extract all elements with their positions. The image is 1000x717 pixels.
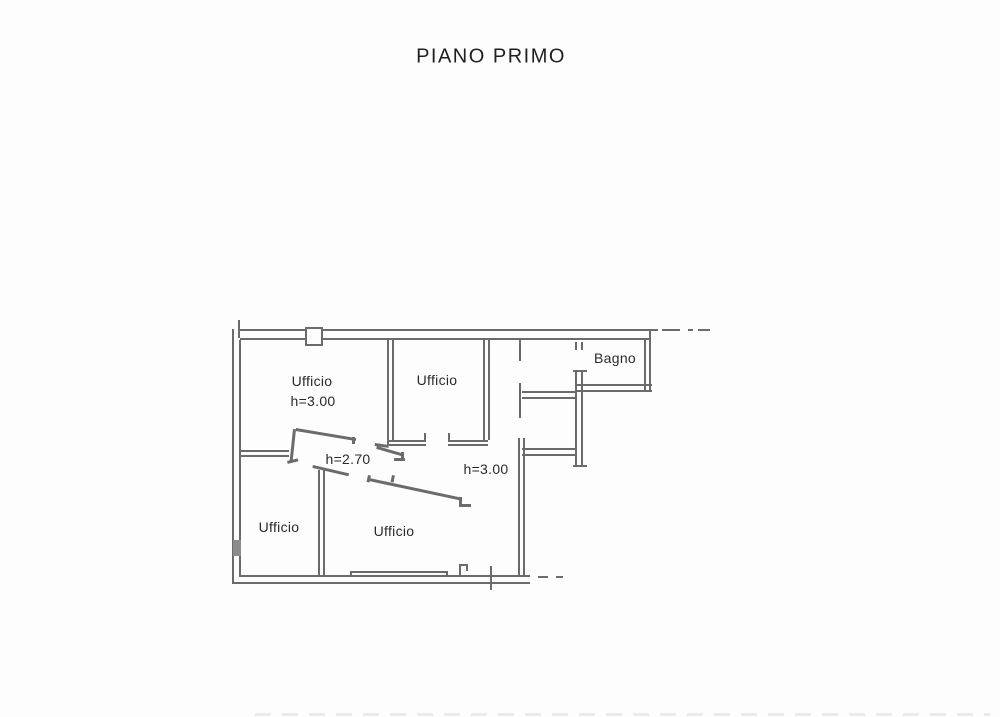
column-pillar (305, 327, 323, 346)
top-middle-office-bottom-seg1-top (387, 440, 426, 442)
left-wall-filled-segment (233, 540, 241, 556)
bottom-boundary-dash-1 (538, 576, 548, 578)
bagno-door-jamb-left (575, 342, 577, 350)
height-annotation-300: h=3.00 (463, 461, 508, 477)
slanted-wall (368, 478, 462, 501)
bagno-left-wall-foot (573, 465, 587, 467)
slanted-wall-end-foot (459, 504, 471, 507)
top-middle-office-bottom-seg2-top (448, 440, 488, 442)
partition-wall-2-top (522, 448, 577, 450)
section-mark-tick (490, 566, 492, 590)
scan-artifact-strip (255, 713, 990, 716)
window-line (350, 571, 448, 573)
bottom-offices-divider-line-b (323, 470, 325, 575)
room-label-ufficio-bottom-left: Ufficio (259, 519, 300, 535)
top-middle-office-door-jamb-right (448, 433, 450, 442)
floor-plan-page: PIANO PRIMO (0, 0, 1000, 717)
top-office-divider-line-b (392, 340, 394, 440)
page-title: PIANO PRIMO (416, 46, 566, 69)
bagno-bottom-wall-bottom-line (577, 390, 652, 392)
angled-door-jamb (290, 429, 296, 462)
height-note-ufficio-top-left: h=3.00 (290, 393, 335, 409)
boundary-dash-1 (662, 329, 680, 331)
top-wall-outer-line (240, 329, 658, 331)
corridor-wall-outer-line (518, 438, 520, 577)
angled-partition-upper (296, 428, 357, 441)
bottom-door-jamb-tick (466, 566, 468, 571)
bottom-offices-divider-line-a (318, 470, 320, 577)
corridor-wall-inner-line (523, 438, 525, 575)
bottom-wall-inner-line (239, 575, 530, 577)
top-middle-office-right-wall-b (488, 340, 490, 440)
left-offices-divider-bottom-line (241, 455, 289, 457)
bagno-right-wall-inner (644, 340, 646, 390)
left-offices-divider-top-line (241, 450, 289, 452)
door-leaf-foot (394, 458, 405, 461)
top-middle-office-door-jamb-left (424, 433, 426, 442)
left-wall-top-tick (238, 320, 240, 338)
corridor-wall-upper-jamb (519, 340, 521, 361)
top-wall-inner-line (240, 338, 650, 340)
bagno-door-jamb-right (581, 342, 583, 350)
bagno-bottom-wall-top-line (577, 384, 652, 386)
partition-wall-1-top (522, 391, 577, 393)
window-end-left (350, 571, 352, 577)
top-middle-office-right-wall-a (483, 340, 485, 440)
top-office-divider-line-a (387, 340, 389, 445)
window-end-right (446, 571, 448, 577)
bagno-right-wall-outer (649, 331, 651, 392)
boundary-dash-2 (688, 329, 693, 331)
angled-door-jamb-foot (287, 458, 298, 464)
partition-wall-1-bottom (522, 397, 577, 399)
top-middle-office-bottom-seg2-bottom (448, 444, 488, 446)
corridor-wall-middle-jamb (519, 383, 521, 418)
bottom-boundary-dash-2 (556, 576, 563, 578)
room-label-ufficio-bottom-middle: Ufficio (374, 523, 415, 539)
top-middle-office-bottom-seg1-bottom (389, 444, 426, 446)
room-label-ufficio-top-left: Ufficio (292, 373, 333, 389)
partition-wall-2-bottom (522, 454, 577, 456)
bottom-wall-outer-line (232, 582, 530, 584)
slanted-wall-jamb-bump (391, 475, 395, 482)
angled-partition-upper-end-tick (352, 437, 355, 444)
room-label-bagno: Bagno (594, 350, 636, 366)
boundary-dash-3 (698, 329, 710, 331)
room-label-ufficio-top-middle: Ufficio (417, 372, 458, 388)
height-annotation-270: h=2.70 (325, 451, 370, 467)
door-leaf-diagonal (376, 446, 404, 457)
